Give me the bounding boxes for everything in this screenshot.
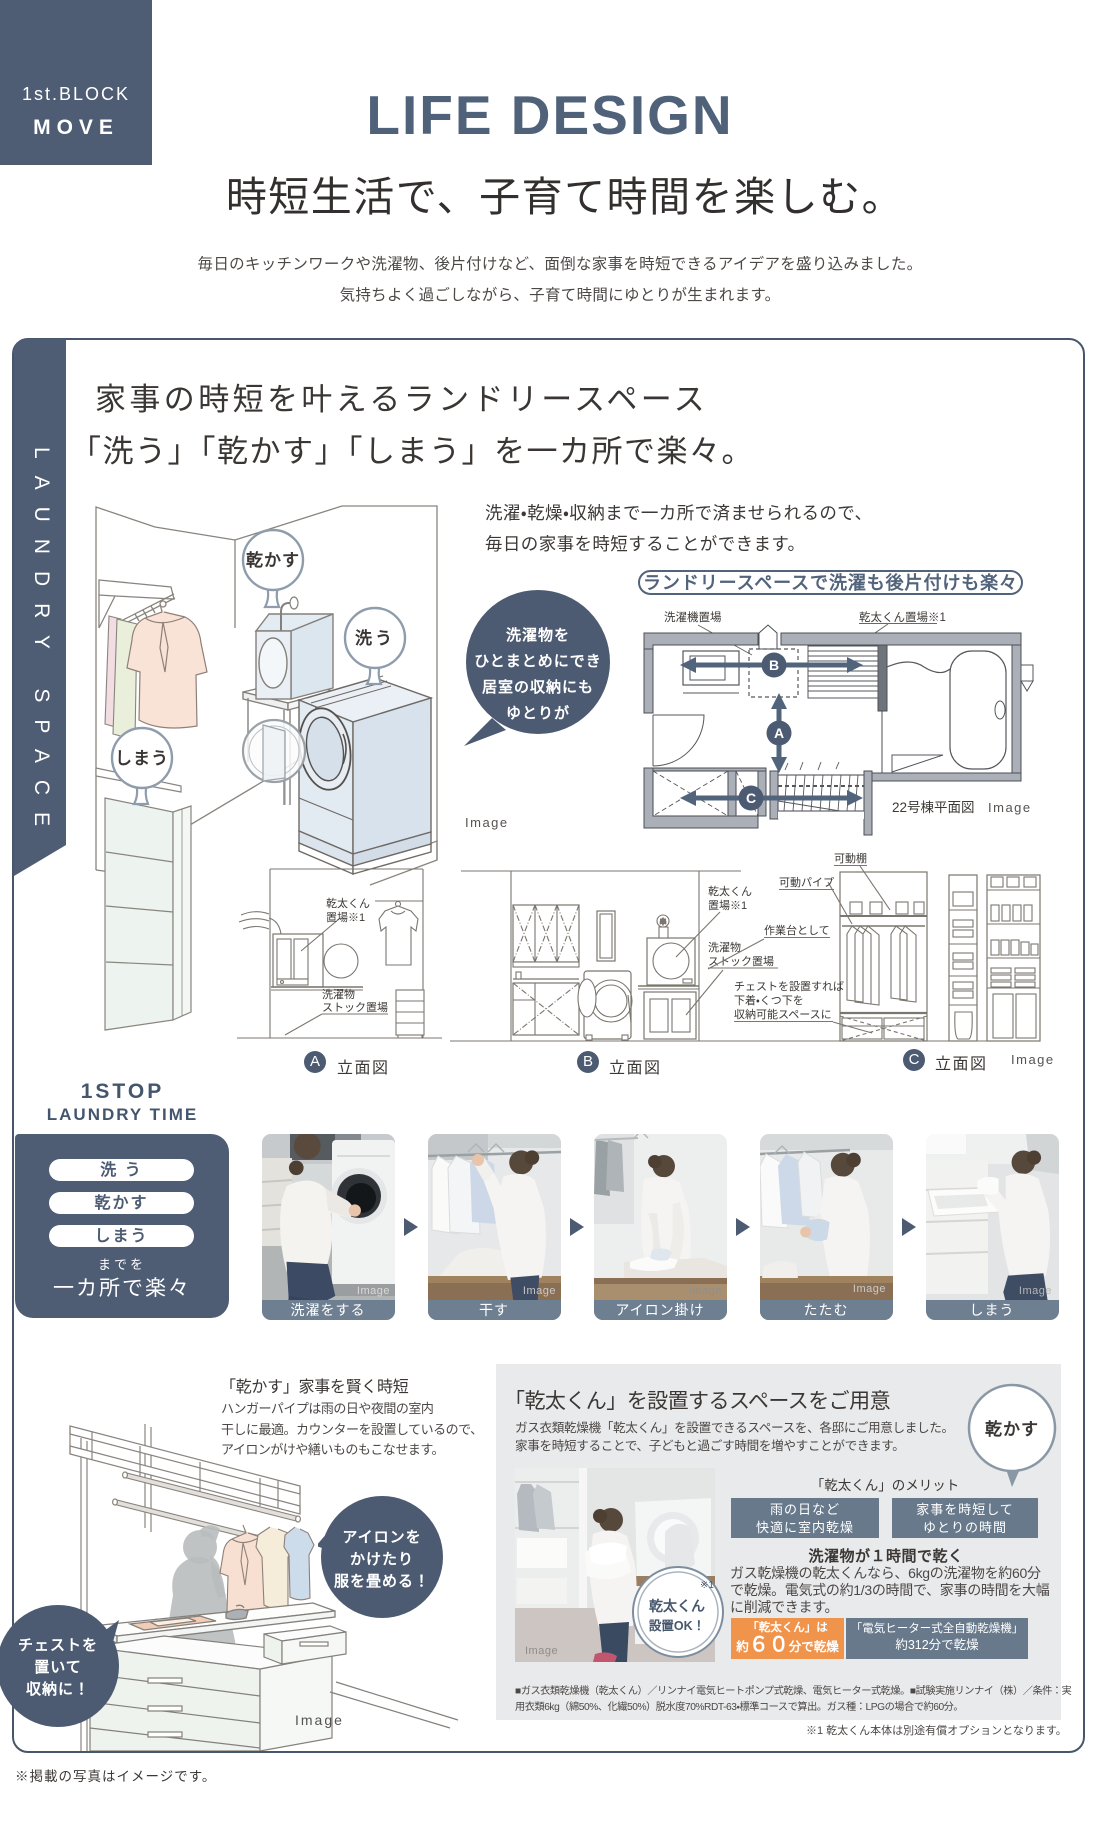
svg-text:串: 串: [660, 918, 667, 926]
svg-text:乾太くん: 乾太くん: [326, 897, 370, 910]
svg-text:服を畳める！: 服を畳める！: [334, 1573, 430, 1590]
svg-text:しまう: しまう: [115, 749, 169, 768]
svg-text:アイロン掛け: アイロン掛け: [615, 1302, 704, 1318]
svg-text:C: C: [746, 790, 756, 806]
svg-text:居室の収納にも: 居室の収納にも: [482, 678, 594, 696]
svg-text:収納可能スペースに: 収納可能スペースに: [734, 1007, 832, 1021]
svg-text:下着・くつ下を: 下着・くつ下を: [734, 993, 804, 1007]
svg-text:洗濯をする: 洗濯をする: [291, 1302, 366, 1318]
svg-text:22号棟平面図: 22号棟平面図: [892, 800, 975, 815]
svg-text:乾太くん: 乾太くん: [649, 1598, 705, 1614]
svg-text:可動棚: 可動棚: [834, 851, 867, 865]
svg-text:Image: Image: [525, 1645, 558, 1657]
svg-text:作業台として: 作業台として: [764, 923, 830, 937]
svg-text:※1: ※1: [700, 1580, 714, 1591]
svg-text:B: B: [769, 657, 779, 673]
svg-text:洗濯物を: 洗濯物を: [506, 626, 570, 644]
svg-text:Image: Image: [689, 1285, 722, 1297]
svg-text:置いて: 置いて: [34, 1659, 82, 1676]
svg-text:ひとまとめにでき: ひとまとめにでき: [474, 653, 602, 670]
svg-text:設置OK！: 設置OK！: [649, 1618, 705, 1633]
svg-text:乾かす: 乾かす: [985, 1419, 1039, 1439]
svg-text:Image: Image: [523, 1285, 556, 1297]
svg-text:乾太くん置場※1: 乾太くん置場※1: [859, 611, 946, 624]
svg-text:たたむ: たたむ: [804, 1302, 849, 1318]
svg-text:チェストを: チェストを: [18, 1637, 98, 1654]
svg-text:アイロンを: アイロンを: [342, 1529, 421, 1546]
svg-text:かけたり: かけたり: [350, 1551, 414, 1568]
svg-text:Image: Image: [853, 1283, 886, 1295]
svg-text:Image: Image: [357, 1285, 390, 1297]
svg-text:乾かす: 乾かす: [246, 550, 300, 570]
svg-text:ゆとりが: ゆとりが: [506, 704, 570, 722]
svg-text:Image: Image: [988, 800, 1032, 815]
svg-text:洗濯物: 洗濯物: [322, 987, 355, 1001]
svg-text:洗濯機置場: 洗濯機置場: [664, 611, 722, 624]
svg-text:収納に！: 収納に！: [26, 1680, 90, 1698]
svg-text:チェストを設置すれば: チェストを設置すれば: [734, 980, 844, 993]
svg-text:Image: Image: [1019, 1285, 1052, 1297]
svg-text:A: A: [774, 725, 784, 741]
svg-text:可動パイプ: 可動パイプ: [779, 875, 834, 889]
svg-text:干す: 干す: [479, 1302, 509, 1318]
svg-text:しまう: しまう: [970, 1302, 1015, 1318]
svg-text:ストック置場: ストック置場: [322, 1001, 388, 1014]
svg-text:洗う: 洗う: [355, 628, 395, 648]
svg-text:置場※1: 置場※1: [326, 911, 365, 924]
